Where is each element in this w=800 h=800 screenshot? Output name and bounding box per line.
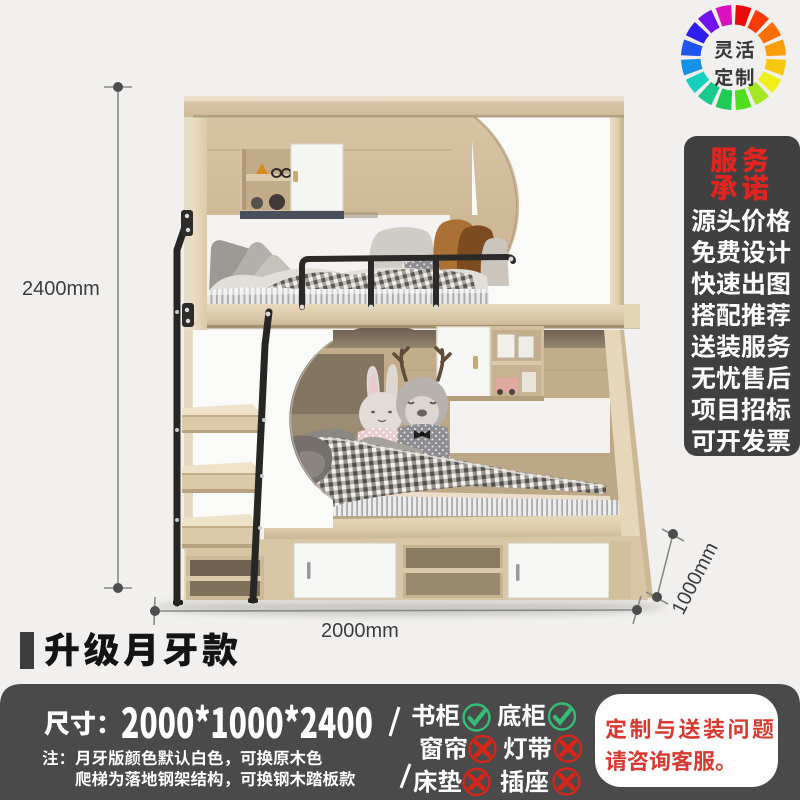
svg-text:2400mm: 2400mm <box>22 278 100 300</box>
svg-text:2000mm: 2000mm <box>321 620 399 642</box>
